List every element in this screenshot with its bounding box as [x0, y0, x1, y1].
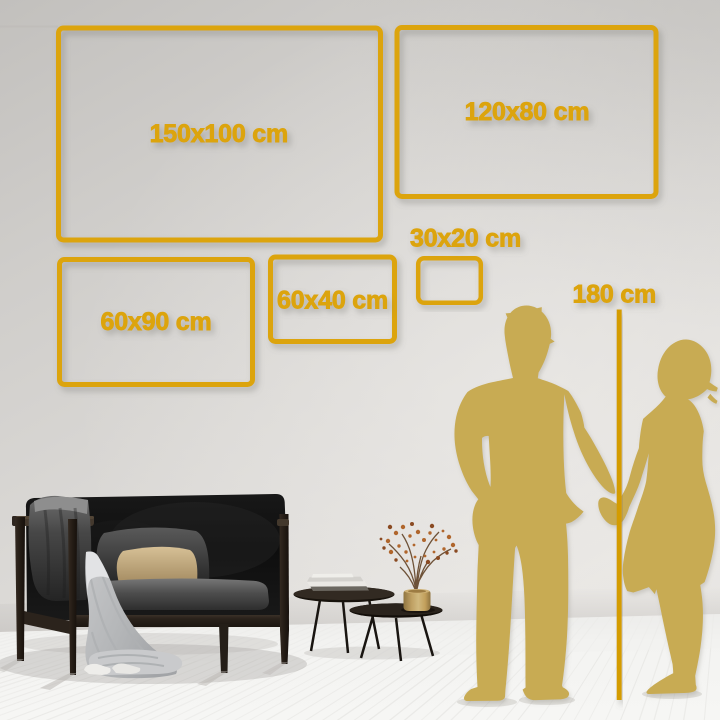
svg-text:60x40 cm: 60x40 cm: [277, 287, 388, 315]
svg-text:150x100 cm: 150x100 cm: [150, 120, 288, 148]
svg-text:60x90 cm: 60x90 cm: [101, 308, 212, 336]
svg-text:180 cm: 180 cm: [573, 281, 657, 309]
svg-text:30x20 cm: 30x20 cm: [410, 225, 521, 253]
svg-text:120x80 cm: 120x80 cm: [465, 98, 590, 126]
